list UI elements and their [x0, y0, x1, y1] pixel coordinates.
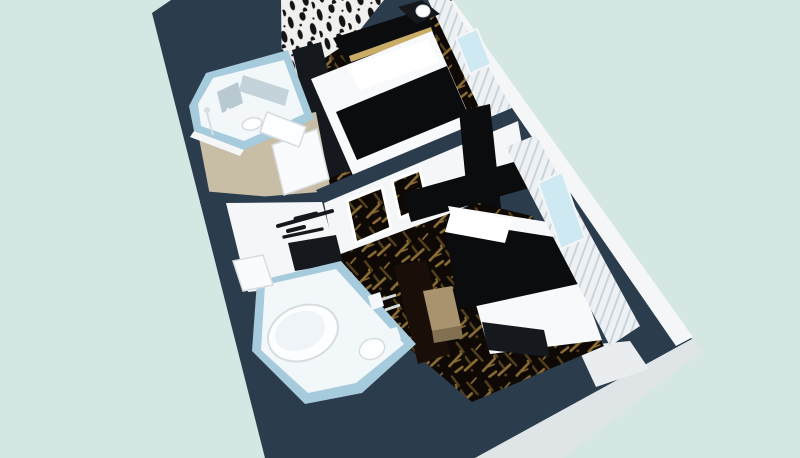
floorplan-svg: [0, 0, 800, 458]
bathroom1-shower-head: [204, 107, 210, 113]
floorplan-render: [0, 0, 800, 458]
room1-lamp: [416, 5, 430, 17]
